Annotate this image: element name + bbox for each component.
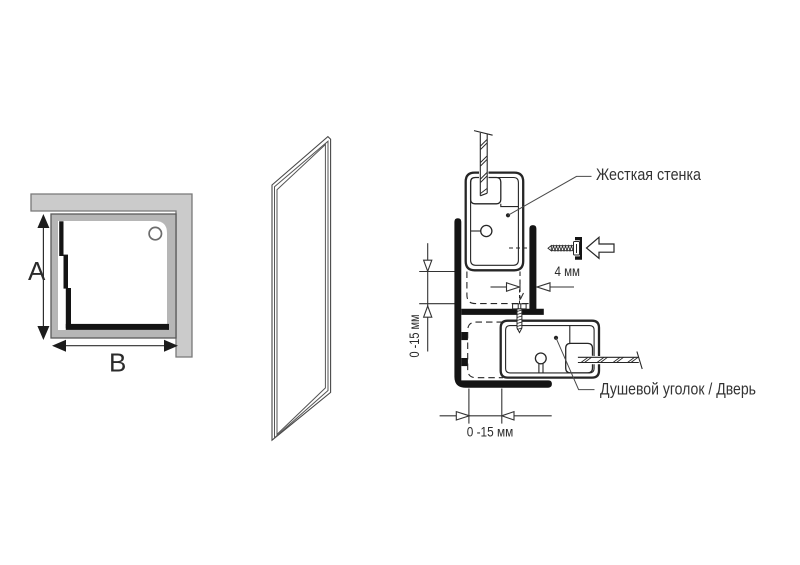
- svg-text:0 -15 мм: 0 -15 мм: [467, 425, 514, 440]
- svg-text:Душевой уголок / Дверь: Душевой уголок / Дверь: [600, 380, 756, 399]
- svg-text:0 -15 мм: 0 -15 мм: [407, 315, 422, 358]
- svg-text:4 мм: 4 мм: [555, 264, 581, 279]
- svg-text:B: B: [109, 348, 126, 378]
- svg-text:A: A: [28, 256, 46, 286]
- svg-text:Жесткая стенка: Жесткая стенка: [596, 165, 701, 184]
